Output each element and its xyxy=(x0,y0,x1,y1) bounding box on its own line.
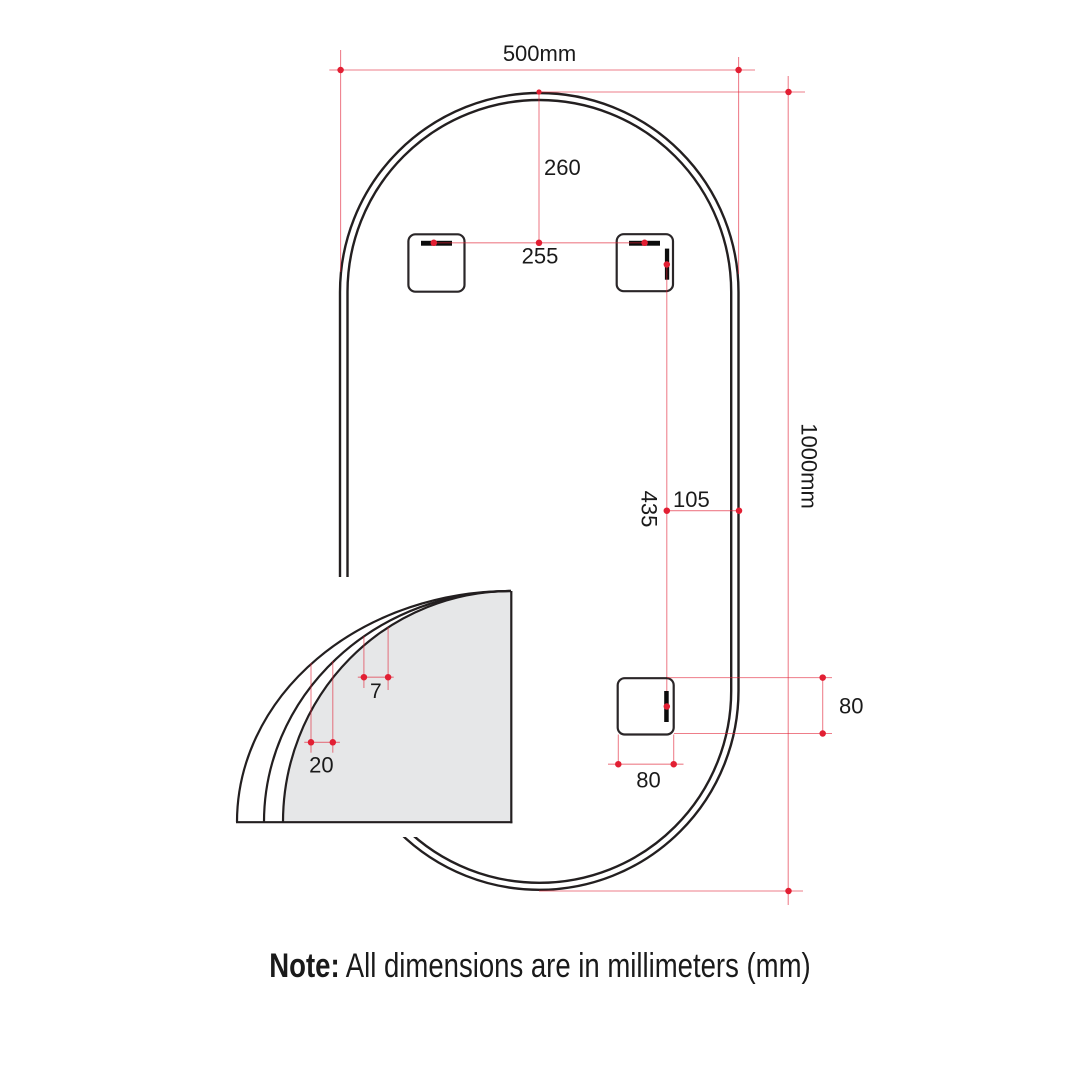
svg-text:20: 20 xyxy=(309,753,333,778)
svg-text:7: 7 xyxy=(370,680,382,703)
svg-text:80: 80 xyxy=(636,768,660,793)
svg-text:Note: All dimensions are in mi: Note: All dimensions are in millimeters … xyxy=(269,946,810,984)
svg-text:255: 255 xyxy=(522,244,559,269)
svg-text:500mm: 500mm xyxy=(503,41,576,66)
svg-text:80: 80 xyxy=(839,694,863,719)
svg-text:1000mm: 1000mm xyxy=(797,423,822,509)
svg-text:105: 105 xyxy=(673,487,710,512)
svg-text:435: 435 xyxy=(636,491,661,528)
svg-text:260: 260 xyxy=(544,155,581,180)
